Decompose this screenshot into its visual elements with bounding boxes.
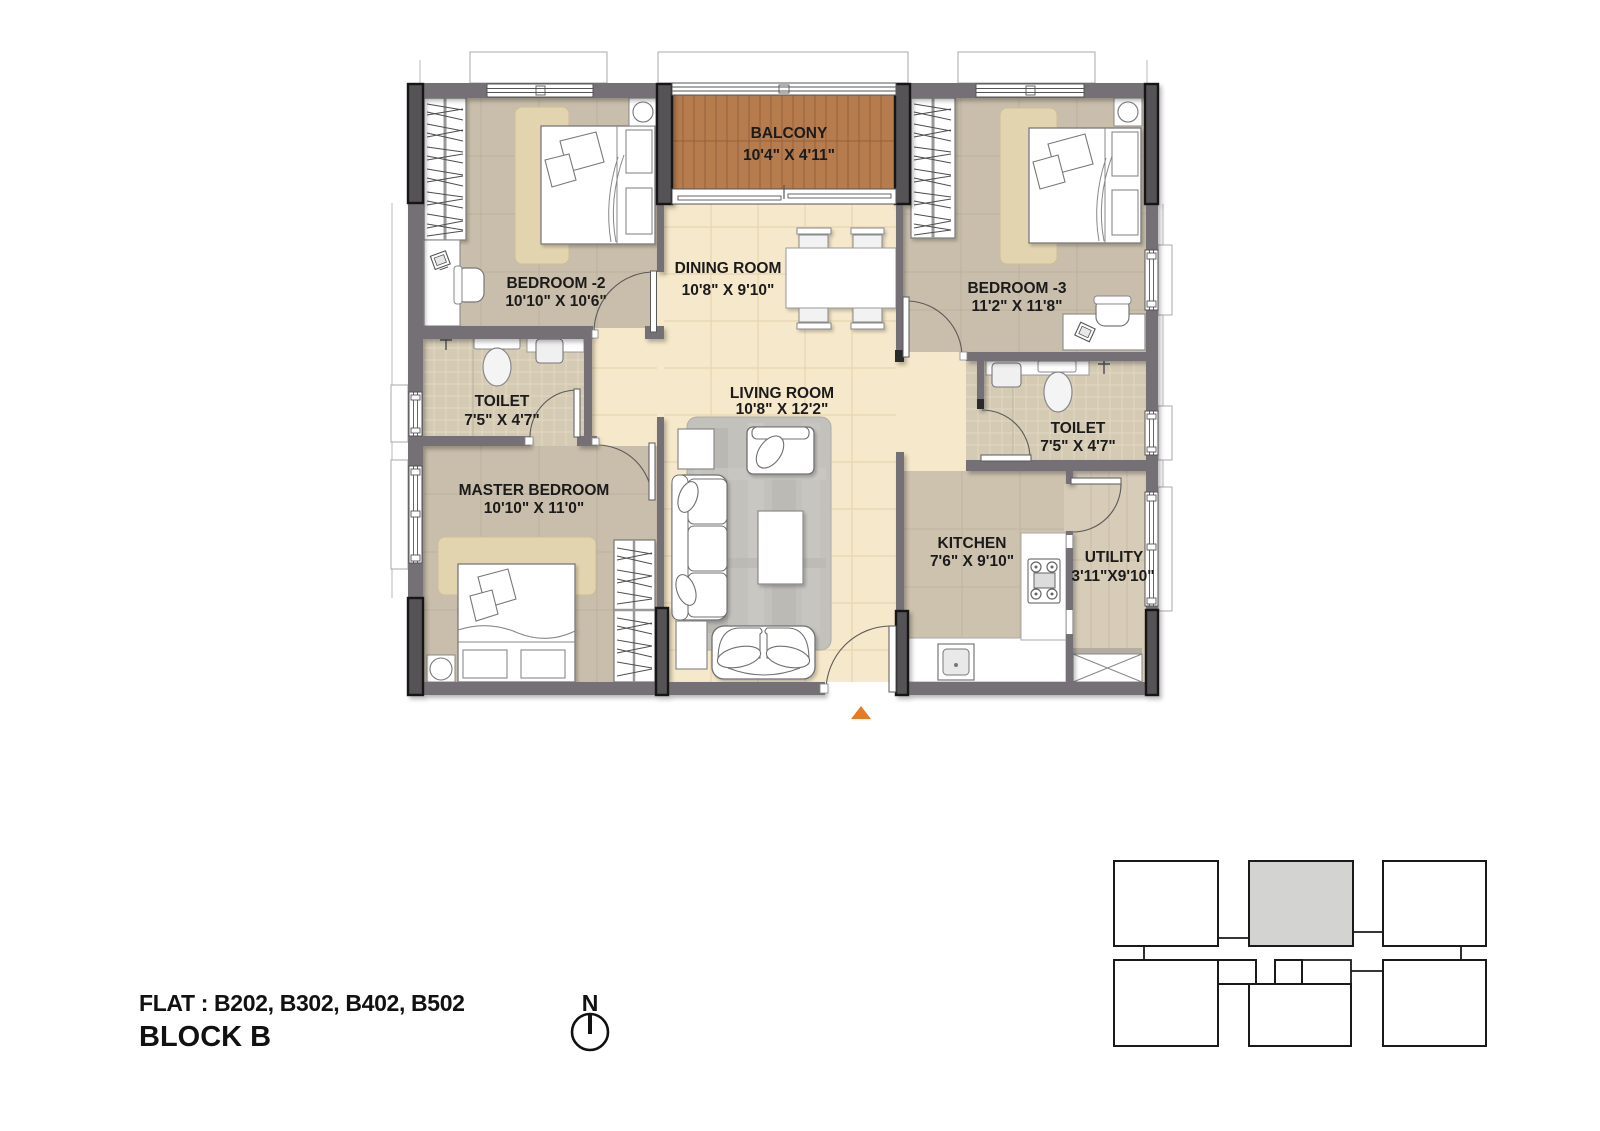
svg-text:7'5" X 4'7": 7'5" X 4'7": [464, 412, 540, 429]
svg-text:TOILET: TOILET: [475, 393, 530, 410]
svg-text:10'8" X 9'10": 10'8" X 9'10": [682, 282, 775, 299]
svg-text:BEDROOM -3: BEDROOM -3: [967, 280, 1066, 297]
svg-text:LIVING ROOM: LIVING ROOM: [730, 385, 834, 402]
svg-text:KITCHEN: KITCHEN: [938, 535, 1007, 552]
svg-text:3'11"X9'10": 3'11"X9'10": [1071, 568, 1154, 585]
svg-text:BLOCK B: BLOCK B: [139, 1021, 271, 1053]
svg-text:10'8" X 12'2": 10'8" X 12'2": [736, 401, 829, 418]
svg-text:MASTER BEDROOM: MASTER BEDROOM: [459, 482, 610, 499]
svg-text:7'6" X 9'10": 7'6" X 9'10": [930, 553, 1014, 570]
svg-text:BALCONY: BALCONY: [751, 125, 828, 142]
svg-text:10'10" X 10'6": 10'10" X 10'6": [505, 293, 606, 310]
svg-text:FLAT : B202, B302, B402, B502: FLAT : B202, B302, B402, B502: [139, 990, 465, 1016]
svg-text:DINING ROOM: DINING ROOM: [675, 260, 782, 277]
svg-text:10'10" X 11'0": 10'10" X 11'0": [484, 500, 585, 517]
svg-text:10'4" X 4'11": 10'4" X 4'11": [743, 147, 835, 164]
svg-text:11'2" X 11'8": 11'2" X 11'8": [971, 298, 1062, 315]
svg-text:TOILET: TOILET: [1051, 420, 1106, 437]
svg-text:UTILITY: UTILITY: [1085, 549, 1144, 566]
svg-text:N: N: [582, 990, 599, 1016]
svg-text:BEDROOM -2: BEDROOM -2: [506, 275, 605, 292]
svg-text:7'5" X 4'7": 7'5" X 4'7": [1040, 438, 1116, 455]
